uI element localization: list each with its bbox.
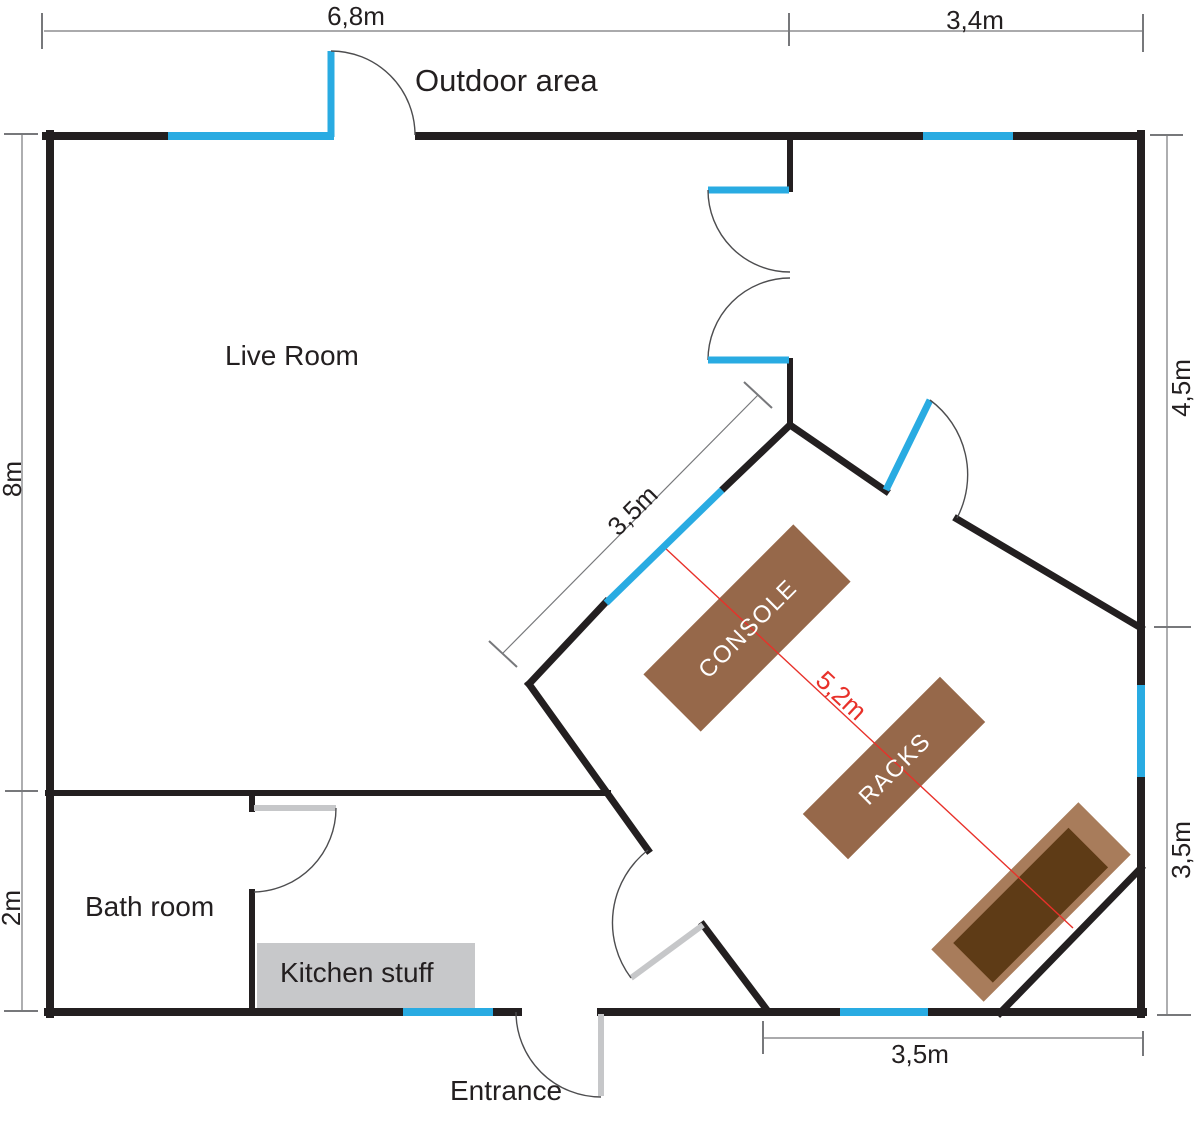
control-room-door-arc bbox=[930, 400, 968, 518]
label-outdoor-area: Outdoor area bbox=[415, 63, 598, 98]
dim-label-left-lower: 2m bbox=[0, 890, 26, 926]
doors bbox=[254, 51, 968, 1097]
wall-diagonal-ne-segment bbox=[790, 425, 886, 491]
dim-label-top-right: 3,4m bbox=[946, 5, 1004, 35]
dim-label-right-lower: 3,5m bbox=[1166, 821, 1196, 879]
hall-control-door-arc bbox=[612, 850, 648, 978]
dim-label-right-upper: 4,5m bbox=[1166, 359, 1196, 417]
console-to-speaker-distance-line bbox=[664, 547, 1073, 928]
dim-label-bottom: 3,5m bbox=[891, 1039, 949, 1069]
label-bath-room: Bath room bbox=[85, 891, 214, 922]
wall-diagonal-e-segment bbox=[957, 519, 1141, 628]
dim-tick-diagonal-bottom bbox=[489, 641, 517, 667]
windows bbox=[168, 136, 1141, 1012]
dim-label-top-left: 6,8m bbox=[327, 1, 385, 31]
bathroom-door-arc bbox=[254, 808, 336, 892]
label-kitchen-stuff: Kitchen stuff bbox=[280, 957, 434, 988]
hall-control-door-leaf bbox=[631, 925, 703, 978]
label-entrance: Entrance bbox=[450, 1075, 562, 1106]
wall-diagonal-sw-lower bbox=[703, 925, 767, 1010]
interior-walls bbox=[48, 135, 790, 1013]
double-door-lower-arc bbox=[708, 278, 790, 360]
double-door-upper-arc bbox=[708, 190, 790, 272]
label-live-room: Live Room bbox=[225, 340, 359, 371]
wall-diagonal-nw-segment bbox=[724, 425, 790, 488]
wall-diagonal-sw-upper bbox=[529, 684, 648, 850]
dim-label-diagonal: 3,5m bbox=[601, 479, 663, 541]
floor-plan: 6,8m 3,4m 8m 2m 4,5m 3,5m 3,5m 3,5m 5,2m… bbox=[0, 0, 1200, 1128]
outdoor-door-arc bbox=[331, 51, 415, 135]
control-room-door-leaf bbox=[886, 400, 930, 490]
furniture-layer bbox=[257, 524, 1131, 1010]
dim-label-left-upper: 8m bbox=[0, 461, 27, 497]
dim-label-console-to-speaker: 5,2m bbox=[810, 665, 873, 726]
exterior-walls bbox=[46, 134, 1143, 1014]
